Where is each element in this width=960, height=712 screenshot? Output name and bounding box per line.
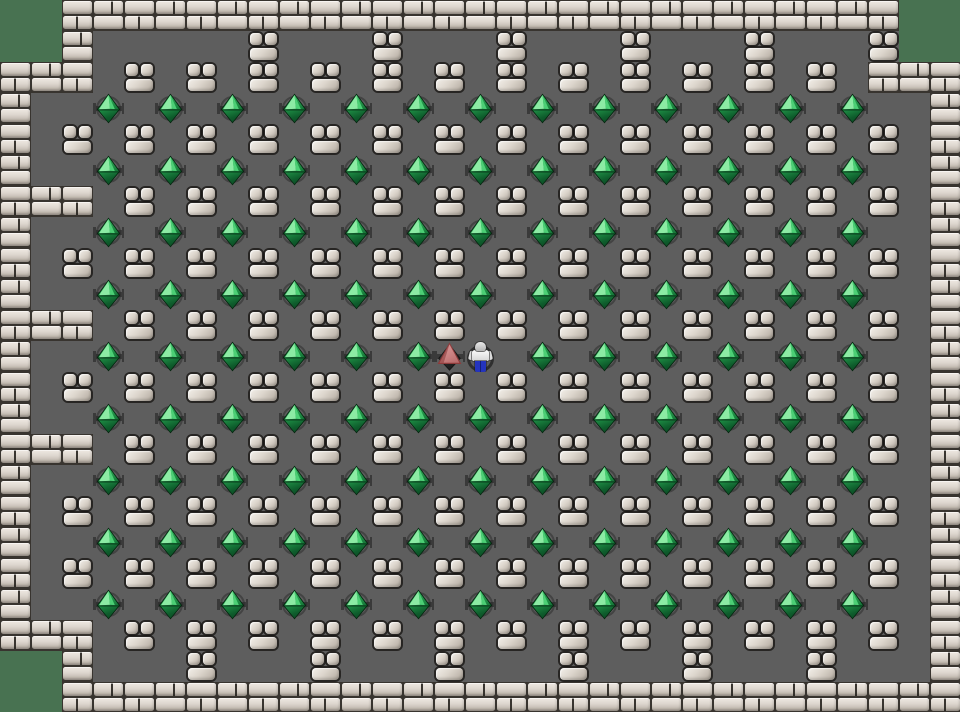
- stone-cluster[interactable]: [372, 372, 403, 403]
- tile-floor[interactable]: [744, 341, 775, 372]
- stone-cluster[interactable]: [620, 124, 651, 155]
- tile-floor[interactable]: [248, 403, 279, 434]
- stone-cluster[interactable]: [496, 434, 527, 465]
- tile-floor[interactable]: [589, 310, 620, 341]
- tile-floor[interactable]: [806, 527, 837, 558]
- tile-floor[interactable]: [837, 186, 868, 217]
- tile-floor[interactable]: [868, 651, 899, 682]
- tile-floor[interactable]: [868, 155, 899, 186]
- stone-cluster[interactable]: [682, 124, 713, 155]
- stone-cluster[interactable]: [186, 496, 217, 527]
- tile-floor[interactable]: [93, 62, 124, 93]
- tile-floor[interactable]: [434, 217, 465, 248]
- stone-cluster[interactable]: [496, 496, 527, 527]
- tile-floor[interactable]: [465, 372, 496, 403]
- emerald-gem[interactable]: [465, 217, 496, 248]
- tile-floor[interactable]: [93, 620, 124, 651]
- tile-floor[interactable]: [682, 279, 713, 310]
- tile-floor[interactable]: [589, 62, 620, 93]
- tile-floor[interactable]: [744, 403, 775, 434]
- stone-cluster[interactable]: [372, 31, 403, 62]
- tile-floor[interactable]: [155, 62, 186, 93]
- emerald-gem[interactable]: [837, 403, 868, 434]
- tile-floor[interactable]: [713, 620, 744, 651]
- tile-floor[interactable]: [465, 62, 496, 93]
- tile-floor[interactable]: [527, 186, 558, 217]
- tile-floor[interactable]: [589, 496, 620, 527]
- tile-floor[interactable]: [496, 403, 527, 434]
- tile-floor[interactable]: [310, 155, 341, 186]
- tile-floor[interactable]: [558, 279, 589, 310]
- stone-cluster[interactable]: [682, 248, 713, 279]
- tile-floor[interactable]: [186, 341, 217, 372]
- emerald-gem[interactable]: [279, 527, 310, 558]
- emerald-gem[interactable]: [93, 527, 124, 558]
- tile-floor[interactable]: [899, 589, 930, 620]
- tile-floor[interactable]: [372, 465, 403, 496]
- tile-floor[interactable]: [93, 372, 124, 403]
- tile-floor[interactable]: [868, 279, 899, 310]
- tile-floor[interactable]: [155, 558, 186, 589]
- emerald-gem[interactable]: [775, 279, 806, 310]
- tile-floor[interactable]: [713, 496, 744, 527]
- emerald-gem[interactable]: [341, 589, 372, 620]
- tile-floor[interactable]: [403, 124, 434, 155]
- tile-floor[interactable]: [496, 155, 527, 186]
- tile-floor[interactable]: [527, 124, 558, 155]
- stone-cluster[interactable]: [496, 124, 527, 155]
- tile-floor[interactable]: [651, 31, 682, 62]
- tile-floor[interactable]: [186, 93, 217, 124]
- emerald-gem[interactable]: [713, 341, 744, 372]
- tile-floor[interactable]: [899, 372, 930, 403]
- tile-floor[interactable]: [372, 403, 403, 434]
- tile-floor[interactable]: [341, 31, 372, 62]
- tile-floor[interactable]: [155, 248, 186, 279]
- tile-floor[interactable]: [124, 527, 155, 558]
- tile-floor[interactable]: [279, 186, 310, 217]
- tile-floor[interactable]: [899, 93, 930, 124]
- tile-floor[interactable]: [31, 527, 62, 558]
- emerald-gem[interactable]: [837, 341, 868, 372]
- tile-floor[interactable]: [620, 403, 651, 434]
- stone-cluster[interactable]: [248, 434, 279, 465]
- tile-floor[interactable]: [465, 434, 496, 465]
- emerald-gem[interactable]: [341, 217, 372, 248]
- tile-floor[interactable]: [186, 155, 217, 186]
- tile-floor[interactable]: [496, 341, 527, 372]
- tile-floor[interactable]: [124, 589, 155, 620]
- tile-floor[interactable]: [124, 31, 155, 62]
- emerald-gem[interactable]: [403, 589, 434, 620]
- stone-cluster[interactable]: [310, 434, 341, 465]
- tile-floor[interactable]: [558, 589, 589, 620]
- emerald-gem[interactable]: [341, 279, 372, 310]
- tile-floor[interactable]: [403, 620, 434, 651]
- stone-cluster[interactable]: [434, 124, 465, 155]
- stone-cluster[interactable]: [434, 372, 465, 403]
- tile-floor[interactable]: [279, 372, 310, 403]
- stone-cluster[interactable]: [372, 620, 403, 651]
- stone-cluster[interactable]: [682, 372, 713, 403]
- tile-floor[interactable]: [620, 279, 651, 310]
- stone-cluster[interactable]: [868, 434, 899, 465]
- stone-cluster[interactable]: [868, 31, 899, 62]
- tile-floor[interactable]: [775, 31, 806, 62]
- tile-floor[interactable]: [62, 217, 93, 248]
- stone-cluster[interactable]: [124, 62, 155, 93]
- tile-floor[interactable]: [341, 124, 372, 155]
- tile-floor[interactable]: [837, 31, 868, 62]
- stone-cluster[interactable]: [682, 186, 713, 217]
- tile-floor[interactable]: [806, 465, 837, 496]
- stone-cluster[interactable]: [124, 558, 155, 589]
- tile-floor[interactable]: [124, 341, 155, 372]
- stone-cluster[interactable]: [620, 620, 651, 651]
- stone-cluster[interactable]: [558, 310, 589, 341]
- tile-floor[interactable]: [713, 31, 744, 62]
- emerald-gem[interactable]: [527, 403, 558, 434]
- stone-cluster[interactable]: [186, 372, 217, 403]
- tile-floor[interactable]: [775, 434, 806, 465]
- tile-floor[interactable]: [31, 279, 62, 310]
- stone-cluster[interactable]: [744, 31, 775, 62]
- tile-floor[interactable]: [341, 558, 372, 589]
- stone-cluster[interactable]: [434, 186, 465, 217]
- stone-cluster[interactable]: [434, 558, 465, 589]
- tile-floor[interactable]: [868, 589, 899, 620]
- tile-floor[interactable]: [899, 403, 930, 434]
- tile-floor[interactable]: [62, 155, 93, 186]
- emerald-gem[interactable]: [465, 155, 496, 186]
- tile-floor[interactable]: [403, 434, 434, 465]
- tile-floor[interactable]: [651, 186, 682, 217]
- stone-cluster[interactable]: [124, 186, 155, 217]
- tile-floor[interactable]: [651, 651, 682, 682]
- emerald-gem[interactable]: [341, 465, 372, 496]
- tile-floor[interactable]: [248, 155, 279, 186]
- tile-floor[interactable]: [341, 496, 372, 527]
- stone-cluster[interactable]: [310, 124, 341, 155]
- tile-floor[interactable]: [248, 93, 279, 124]
- stone-cluster[interactable]: [558, 372, 589, 403]
- emerald-gem[interactable]: [837, 527, 868, 558]
- emerald-gem[interactable]: [589, 279, 620, 310]
- tile-floor[interactable]: [651, 124, 682, 155]
- tile-floor[interactable]: [899, 434, 930, 465]
- emerald-gem[interactable]: [403, 465, 434, 496]
- tile-floor[interactable]: [31, 217, 62, 248]
- stone-cluster[interactable]: [744, 496, 775, 527]
- tile-floor[interactable]: [372, 589, 403, 620]
- tile-floor[interactable]: [806, 217, 837, 248]
- emerald-gem[interactable]: [775, 93, 806, 124]
- tile-floor[interactable]: [31, 372, 62, 403]
- stone-cluster[interactable]: [372, 496, 403, 527]
- stone-cluster[interactable]: [744, 62, 775, 93]
- tile-floor[interactable]: [713, 372, 744, 403]
- stone-cluster[interactable]: [806, 558, 837, 589]
- tile-floor[interactable]: [62, 93, 93, 124]
- emerald-gem[interactable]: [279, 217, 310, 248]
- emerald-gem[interactable]: [713, 217, 744, 248]
- tile-floor[interactable]: [434, 279, 465, 310]
- tile-floor[interactable]: [837, 434, 868, 465]
- tile-floor[interactable]: [434, 31, 465, 62]
- stone-cluster[interactable]: [186, 124, 217, 155]
- tile-floor[interactable]: [651, 620, 682, 651]
- stone-cluster[interactable]: [372, 434, 403, 465]
- stone-cluster[interactable]: [124, 310, 155, 341]
- emerald-gem[interactable]: [527, 589, 558, 620]
- tile-floor[interactable]: [620, 93, 651, 124]
- tile-floor[interactable]: [899, 279, 930, 310]
- tile-floor[interactable]: [155, 496, 186, 527]
- tile-floor[interactable]: [775, 62, 806, 93]
- stone-cluster[interactable]: [310, 62, 341, 93]
- emerald-gem[interactable]: [155, 589, 186, 620]
- tile-floor[interactable]: [806, 589, 837, 620]
- stone-cluster[interactable]: [744, 186, 775, 217]
- tile-floor[interactable]: [372, 155, 403, 186]
- emerald-gem[interactable]: [217, 403, 248, 434]
- tile-floor[interactable]: [527, 496, 558, 527]
- stone-cluster[interactable]: [186, 651, 217, 682]
- tile-floor[interactable]: [124, 279, 155, 310]
- emerald-gem[interactable]: [341, 155, 372, 186]
- tile-floor[interactable]: [620, 217, 651, 248]
- tile-floor[interactable]: [341, 434, 372, 465]
- emerald-gem[interactable]: [155, 527, 186, 558]
- stone-cluster[interactable]: [124, 248, 155, 279]
- emerald-gem[interactable]: [465, 589, 496, 620]
- tile-floor[interactable]: [713, 310, 744, 341]
- tile-floor[interactable]: [217, 620, 248, 651]
- emerald-gem[interactable]: [651, 527, 682, 558]
- tile-floor[interactable]: [310, 217, 341, 248]
- tile-floor[interactable]: [496, 93, 527, 124]
- tile-floor[interactable]: [589, 186, 620, 217]
- tile-floor[interactable]: [124, 651, 155, 682]
- stone-cluster[interactable]: [620, 62, 651, 93]
- emerald-gem[interactable]: [589, 93, 620, 124]
- tile-floor[interactable]: [806, 93, 837, 124]
- tile-floor[interactable]: [62, 465, 93, 496]
- stone-cluster[interactable]: [124, 434, 155, 465]
- tile-floor[interactable]: [62, 403, 93, 434]
- tile-floor[interactable]: [279, 248, 310, 279]
- tile-floor[interactable]: [837, 372, 868, 403]
- stone-cluster[interactable]: [310, 651, 341, 682]
- emerald-gem[interactable]: [713, 465, 744, 496]
- stone-cluster[interactable]: [620, 310, 651, 341]
- emerald-gem[interactable]: [837, 465, 868, 496]
- stone-cluster[interactable]: [496, 186, 527, 217]
- stone-cluster[interactable]: [558, 62, 589, 93]
- tile-floor[interactable]: [589, 651, 620, 682]
- tile-floor[interactable]: [744, 217, 775, 248]
- stone-cluster[interactable]: [620, 372, 651, 403]
- stone-cluster[interactable]: [558, 434, 589, 465]
- tile-floor[interactable]: [217, 496, 248, 527]
- tile-floor[interactable]: [589, 434, 620, 465]
- emerald-gem[interactable]: [217, 279, 248, 310]
- tile-floor[interactable]: [372, 217, 403, 248]
- emerald-gem[interactable]: [93, 217, 124, 248]
- emerald-gem[interactable]: [527, 279, 558, 310]
- emerald-gem[interactable]: [465, 527, 496, 558]
- tile-floor[interactable]: [62, 341, 93, 372]
- tile-floor[interactable]: [651, 434, 682, 465]
- stone-cluster[interactable]: [434, 651, 465, 682]
- tile-floor[interactable]: [589, 372, 620, 403]
- emerald-gem[interactable]: [713, 403, 744, 434]
- tile-floor[interactable]: [403, 186, 434, 217]
- stone-cluster[interactable]: [310, 248, 341, 279]
- tile-floor[interactable]: [217, 124, 248, 155]
- stone-cluster[interactable]: [496, 372, 527, 403]
- stone-cluster[interactable]: [310, 372, 341, 403]
- tile-floor[interactable]: [434, 155, 465, 186]
- emerald-gem[interactable]: [775, 155, 806, 186]
- tile-floor[interactable]: [682, 217, 713, 248]
- stone-cluster[interactable]: [744, 558, 775, 589]
- tile-floor[interactable]: [682, 589, 713, 620]
- tile-floor[interactable]: [93, 496, 124, 527]
- stone-cluster[interactable]: [682, 558, 713, 589]
- tile-floor[interactable]: [837, 496, 868, 527]
- stone-cluster[interactable]: [806, 124, 837, 155]
- emerald-gem[interactable]: [217, 527, 248, 558]
- tile-floor[interactable]: [93, 124, 124, 155]
- stone-cluster[interactable]: [620, 434, 651, 465]
- tile-floor[interactable]: [341, 620, 372, 651]
- tile-floor[interactable]: [868, 217, 899, 248]
- tile-floor[interactable]: [341, 62, 372, 93]
- emerald-gem[interactable]: [589, 403, 620, 434]
- tile-floor[interactable]: [31, 248, 62, 279]
- tile-floor[interactable]: [186, 31, 217, 62]
- tile-floor[interactable]: [279, 124, 310, 155]
- stone-cluster[interactable]: [310, 620, 341, 651]
- stone-cluster[interactable]: [868, 620, 899, 651]
- tile-floor[interactable]: [93, 186, 124, 217]
- tile-floor[interactable]: [558, 93, 589, 124]
- tile-floor[interactable]: [341, 248, 372, 279]
- stone-cluster[interactable]: [620, 496, 651, 527]
- emerald-gem[interactable]: [93, 93, 124, 124]
- emerald-gem[interactable]: [837, 589, 868, 620]
- tile-floor[interactable]: [589, 124, 620, 155]
- tile-floor[interactable]: [434, 527, 465, 558]
- tile-floor[interactable]: [155, 372, 186, 403]
- tile-floor[interactable]: [558, 31, 589, 62]
- tile-floor[interactable]: [434, 93, 465, 124]
- tile-floor[interactable]: [403, 558, 434, 589]
- emerald-gem[interactable]: [527, 155, 558, 186]
- tile-floor[interactable]: [186, 403, 217, 434]
- stone-cluster[interactable]: [868, 186, 899, 217]
- tile-floor[interactable]: [620, 589, 651, 620]
- tile-floor[interactable]: [837, 558, 868, 589]
- emerald-gem[interactable]: [93, 155, 124, 186]
- stone-cluster[interactable]: [558, 558, 589, 589]
- tile-floor[interactable]: [31, 589, 62, 620]
- tile-floor[interactable]: [496, 589, 527, 620]
- emerald-gem[interactable]: [651, 403, 682, 434]
- tile-floor[interactable]: [713, 434, 744, 465]
- emerald-gem[interactable]: [279, 279, 310, 310]
- stone-cluster[interactable]: [372, 124, 403, 155]
- emerald-gem[interactable]: [589, 465, 620, 496]
- tile-floor[interactable]: [403, 31, 434, 62]
- stone-cluster[interactable]: [806, 310, 837, 341]
- stone-cluster[interactable]: [248, 372, 279, 403]
- emerald-gem[interactable]: [775, 341, 806, 372]
- emerald-gem[interactable]: [465, 93, 496, 124]
- emerald-gem[interactable]: [651, 341, 682, 372]
- emerald-gem[interactable]: [713, 279, 744, 310]
- tile-floor[interactable]: [775, 248, 806, 279]
- tile-floor[interactable]: [620, 651, 651, 682]
- stone-cluster[interactable]: [248, 310, 279, 341]
- tile-floor[interactable]: [806, 31, 837, 62]
- tile-floor[interactable]: [744, 651, 775, 682]
- tile-floor[interactable]: [868, 403, 899, 434]
- tile-floor[interactable]: [62, 279, 93, 310]
- tile-floor[interactable]: [310, 589, 341, 620]
- tile-floor[interactable]: [217, 651, 248, 682]
- tile-floor[interactable]: [527, 372, 558, 403]
- tile-floor[interactable]: [806, 279, 837, 310]
- tile-floor[interactable]: [248, 527, 279, 558]
- tile-floor[interactable]: [899, 186, 930, 217]
- emerald-gem[interactable]: [217, 217, 248, 248]
- emerald-gem[interactable]: [589, 217, 620, 248]
- tile-floor[interactable]: [279, 310, 310, 341]
- tile-floor[interactable]: [837, 248, 868, 279]
- tile-floor[interactable]: [31, 93, 62, 124]
- emerald-gem[interactable]: [403, 403, 434, 434]
- emerald-gem[interactable]: [589, 589, 620, 620]
- stone-cluster[interactable]: [186, 558, 217, 589]
- stone-cluster[interactable]: [744, 248, 775, 279]
- emerald-gem[interactable]: [837, 155, 868, 186]
- emerald-gem[interactable]: [527, 217, 558, 248]
- stone-cluster[interactable]: [682, 62, 713, 93]
- stone-cluster[interactable]: [186, 186, 217, 217]
- emerald-gem[interactable]: [465, 403, 496, 434]
- tile-floor[interactable]: [806, 341, 837, 372]
- stone-cluster[interactable]: [496, 558, 527, 589]
- emerald-gem[interactable]: [713, 155, 744, 186]
- tile-floor[interactable]: [217, 62, 248, 93]
- stone-cluster[interactable]: [372, 310, 403, 341]
- emerald-gem[interactable]: [93, 465, 124, 496]
- tile-floor[interactable]: [775, 651, 806, 682]
- tile-floor[interactable]: [31, 124, 62, 155]
- emerald-gem[interactable]: [341, 527, 372, 558]
- tile-floor[interactable]: [713, 62, 744, 93]
- stone-cluster[interactable]: [682, 496, 713, 527]
- emerald-gem[interactable]: [403, 155, 434, 186]
- stone-cluster[interactable]: [248, 558, 279, 589]
- tile-floor[interactable]: [899, 124, 930, 155]
- tile-floor[interactable]: [217, 248, 248, 279]
- tile-floor[interactable]: [899, 558, 930, 589]
- tile-floor[interactable]: [310, 31, 341, 62]
- stone-cluster[interactable]: [744, 434, 775, 465]
